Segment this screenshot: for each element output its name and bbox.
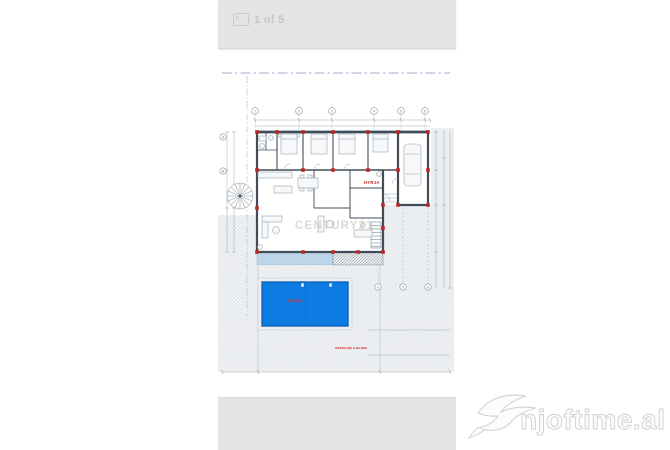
svg-text:1: 1 (254, 109, 256, 113)
wood-deck-hatched (333, 252, 383, 265)
viewer-bottom-bar (218, 397, 456, 450)
svg-text:4: 4 (373, 109, 375, 113)
listing-photo-viewer: 1 of 5 (0, 0, 670, 450)
agency-watermark: CENTURY21 (295, 220, 374, 232)
car-outline (404, 144, 421, 186)
svg-text:5: 5 (402, 285, 404, 289)
site-watermark-text: njoftime.al (520, 404, 666, 435)
terrace-blue (257, 252, 333, 265)
viewer-top-bar: 1 of 5 (218, 0, 456, 49)
svg-text:6: 6 (424, 109, 426, 113)
page-indicator: 1 of 5 (233, 13, 285, 26)
site-watermark: njoftime.al (468, 383, 668, 445)
svg-text:4: 4 (377, 285, 379, 289)
swimming-pool: PISHINA (258, 278, 352, 330)
svg-text:3: 3 (331, 109, 333, 113)
photo-stack-icon (233, 13, 249, 26)
entrance-label: HYRJA (364, 180, 380, 185)
svg-text:2: 2 (298, 109, 300, 113)
photo-strip: 1 of 5 (218, 0, 456, 450)
pool-ladder-icon (301, 283, 304, 287)
floor-plan-image: PISHINA (218, 48, 456, 397)
page-indicator-label: 1 of 5 (254, 14, 285, 26)
spiral-staircase (227, 183, 253, 209)
pool-ladder-icon (329, 283, 332, 287)
pool-label: PISHINA (288, 299, 302, 303)
svg-text:5: 5 (400, 109, 402, 113)
ground-note-label: SIPERFAQE GJELBER (335, 346, 368, 350)
svg-text:6: 6 (427, 285, 429, 289)
